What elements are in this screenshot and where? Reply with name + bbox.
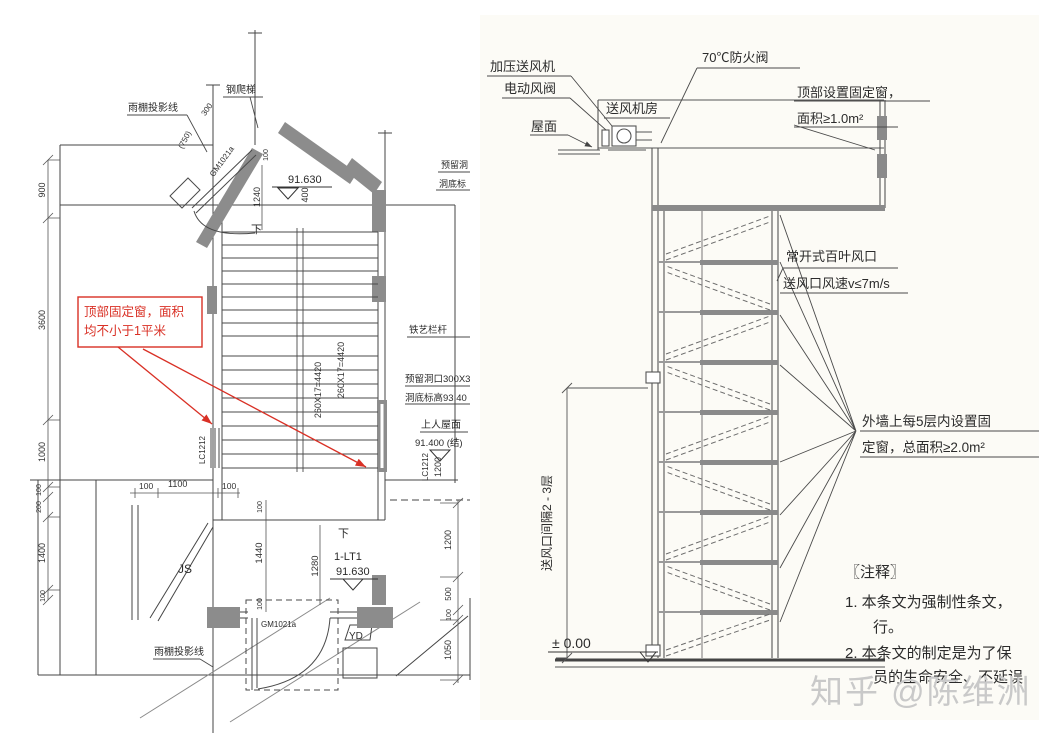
level-top: 91.630 <box>288 174 322 186</box>
roof-access-label: 上人屋面 <box>421 419 461 431</box>
dim-left-1400: 1400 <box>37 543 47 563</box>
hole-level-label: 洞底标高93.40 <box>405 392 467 404</box>
dim-win-1200: 1200 <box>433 457 443 477</box>
technical-drawing-svg: 雨棚投影线 钢爬梯 300 (750) GM1021a 100 91.630 1… <box>0 0 1039 733</box>
flight-dim-left: 260X17=4420 <box>313 362 323 418</box>
window-left-label: LC1212 <box>198 435 207 464</box>
dim-mid-100b: 100 <box>257 598 264 610</box>
door-top-label: GM1021a <box>208 144 236 178</box>
top-window-label-2: 面积≥1.0m² <box>797 111 864 126</box>
ground-level-label: ± 0.00 <box>552 635 591 651</box>
dim-right-1050: 1050 <box>443 640 453 660</box>
dim-1240: 1240 <box>252 187 262 207</box>
steel-ladder-label: 钢爬梯 <box>226 83 256 96</box>
room-js-label: JS <box>178 562 192 576</box>
reserved-hole-top-label: 预留洞 <box>441 159 468 170</box>
dim-left-200: 200 <box>36 501 43 513</box>
top-window-label-1: 顶部设置固定窗， <box>797 85 901 100</box>
dim-mid-100a: 100 <box>257 501 264 513</box>
canopy-top-label: 雨棚投影线 <box>128 101 178 114</box>
plan-stair-treads <box>222 228 378 472</box>
dim-left-3600: 3600 <box>37 310 47 330</box>
dim-mid-1440: 1440 <box>254 542 265 563</box>
drawing-canvas: 雨棚投影线 钢爬梯 300 (750) GM1021a 100 91.630 1… <box>0 0 1039 733</box>
red-note-line2: 均不小于1平米 <box>84 324 166 338</box>
louver-label-2: 送风口风速v≤7m/s <box>783 276 890 291</box>
valve-label: 电动风阀 <box>504 81 556 96</box>
dim-left-100a: 100 <box>36 484 43 496</box>
dim-right-500: 500 <box>444 587 453 601</box>
down-top-label: 下 <box>251 224 262 236</box>
roof-level-label: 91.400 (结) <box>415 437 463 449</box>
louver-label-1: 常开式百叶风口 <box>786 249 877 264</box>
hole-level-top-label: 洞底标 <box>439 178 466 189</box>
wall-window-label-1: 外墙上每5层内设置固 <box>862 414 991 429</box>
dim-right-100: 100 <box>446 609 453 621</box>
dim-750: (750) <box>176 129 193 150</box>
watermark-text: 知乎 @陈维洲 <box>810 673 1032 710</box>
fan-room-label: 送风机房 <box>606 101 658 116</box>
dim-left-1000: 1000 <box>37 442 47 462</box>
plan-gray-walls <box>196 122 393 628</box>
dim-left-100b: 100 <box>40 590 47 602</box>
dim-right-1200: 1200 <box>443 530 453 550</box>
red-note-line1: 顶部固定窗，面积 <box>84 304 184 319</box>
dim-bottom-100a: 100 <box>139 481 153 491</box>
stair-name-label: 1-LT1 <box>334 551 362 563</box>
dim-left-900: 900 <box>37 182 47 197</box>
dim-mid-1280: 1280 <box>310 555 321 576</box>
roof-label: 屋面 <box>531 119 557 134</box>
canopy-bottom-label: 雨棚投影线 <box>154 645 204 658</box>
dim-bottom-100b: 100 <box>222 481 236 491</box>
wall-window-label-2: 定窗，总面积≥2.0m² <box>862 439 985 455</box>
room-yd-label: YD <box>349 631 363 642</box>
dim-400: 400 <box>300 187 310 202</box>
dim-100-top: 100 <box>263 149 270 161</box>
flight-dim-right: 260X17=4420 <box>336 342 346 398</box>
down-bottom-label: 下 <box>338 528 349 540</box>
plan-level-symbols <box>272 187 450 590</box>
reserved-hole-label: 预留洞口300X3 <box>405 373 470 385</box>
iron-railing-label: 铁艺栏杆 <box>409 324 448 336</box>
window-right-label: LC1212 <box>421 452 430 481</box>
note-2-line-1: 2. 本条文的制定是为了保 <box>845 645 1012 662</box>
dim-bottom-1100: 1100 <box>168 479 187 489</box>
fan-label: 加压送风机 <box>490 59 555 74</box>
plan-structure-lines <box>30 30 470 733</box>
door-bottom-label: GM1021a <box>261 620 297 629</box>
level-bottom: 91.630 <box>336 566 370 578</box>
note-1-line-1: 1. 本条文为强制性条文， <box>845 594 1012 611</box>
note-1-line-2: 行。 <box>873 619 903 636</box>
fire-damper-label: 70℃防火阀 <box>702 50 768 65</box>
notes-title: 〖注释〗 <box>845 564 905 581</box>
spacing-dim-label: 送风口间隔2 - 3层 <box>539 475 554 571</box>
